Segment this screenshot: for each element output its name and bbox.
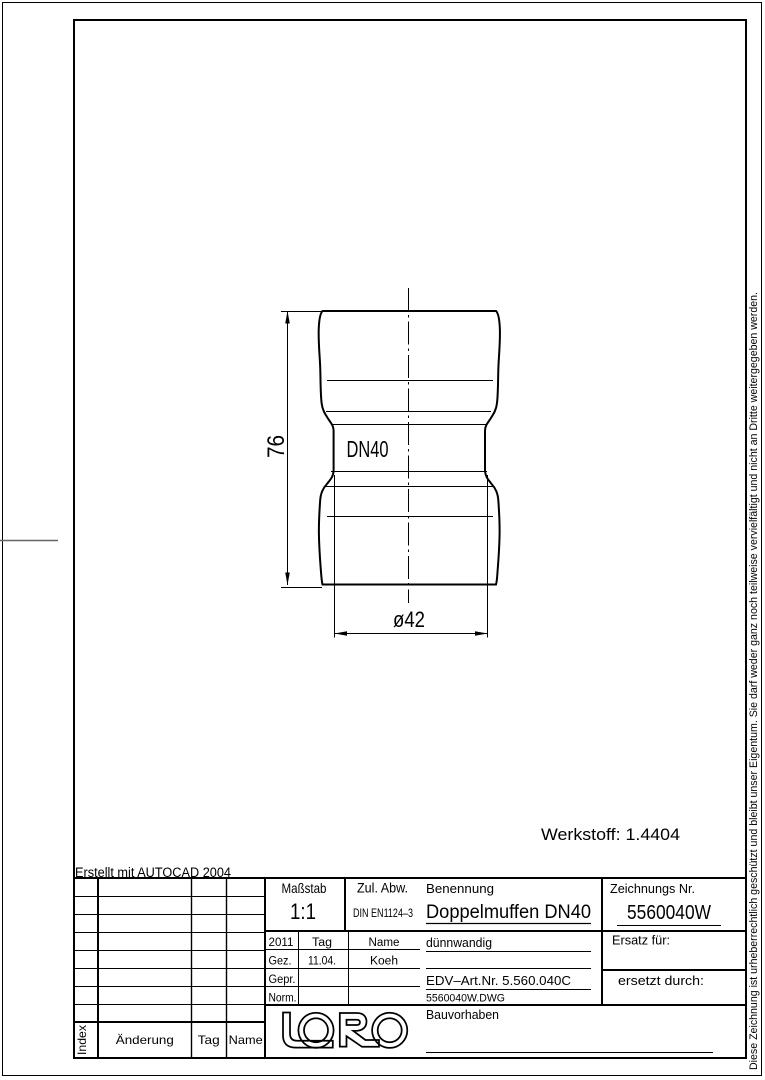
svg-text:11.04.: 11.04. bbox=[308, 956, 336, 968]
svg-text:Koeh: Koeh bbox=[370, 956, 398, 968]
svg-text:ø42: ø42 bbox=[393, 607, 425, 632]
svg-text:Diese Zeichnung ist urheberrec: Diese Zeichnung ist urheberrechtlich ges… bbox=[748, 292, 760, 1070]
svg-text:2011: 2011 bbox=[269, 937, 294, 949]
svg-text:EDV–Art.Nr. 5.560.040C: EDV–Art.Nr. 5.560.040C bbox=[426, 974, 571, 988]
svg-text:Zeichnungs Nr.: Zeichnungs Nr. bbox=[610, 882, 695, 896]
svg-text:Zul. Abw.: Zul. Abw. bbox=[357, 880, 408, 896]
svg-text:Werkstoff: 1.4404: Werkstoff: 1.4404 bbox=[541, 825, 680, 844]
svg-text:Gez.: Gez. bbox=[269, 956, 292, 968]
svg-text:Gepr.: Gepr. bbox=[269, 974, 296, 986]
svg-text:ersetzt durch:: ersetzt durch: bbox=[618, 974, 704, 988]
svg-text:Name: Name bbox=[229, 1033, 263, 1047]
svg-text:Änderung: Änderung bbox=[116, 1033, 174, 1047]
svg-text:Tag: Tag bbox=[198, 1033, 220, 1047]
svg-text:DN40: DN40 bbox=[347, 436, 389, 462]
svg-text:Name: Name bbox=[369, 937, 400, 949]
svg-text:5560040W.DWG: 5560040W.DWG bbox=[426, 993, 505, 1005]
svg-text:dünnwandig: dünnwandig bbox=[426, 936, 492, 950]
svg-text:Norm.: Norm. bbox=[269, 993, 297, 1005]
svg-text:1:1: 1:1 bbox=[290, 899, 316, 924]
svg-text:Maßstab: Maßstab bbox=[282, 880, 327, 896]
svg-text:Bauvorhaben: Bauvorhaben bbox=[426, 1008, 499, 1022]
svg-text:76: 76 bbox=[263, 435, 290, 458]
svg-text:Index: Index bbox=[75, 1025, 89, 1055]
svg-text:Ersatz für:: Ersatz für: bbox=[612, 934, 670, 948]
svg-text:Doppelmuffen DN40: Doppelmuffen DN40 bbox=[426, 902, 591, 923]
svg-text:5560040W: 5560040W bbox=[627, 902, 711, 924]
svg-text:DIN EN1124–3: DIN EN1124–3 bbox=[353, 906, 413, 920]
svg-text:Tag: Tag bbox=[312, 937, 332, 949]
svg-text:Benennung: Benennung bbox=[426, 882, 494, 896]
